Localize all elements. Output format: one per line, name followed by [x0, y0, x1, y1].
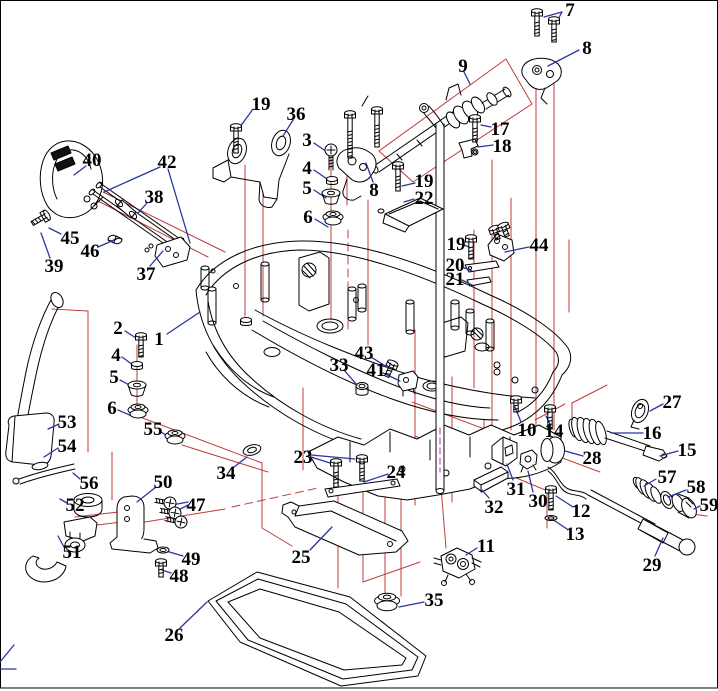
stud-icon [358, 284, 366, 312]
callout-52: 52 [66, 495, 85, 516]
callout-57: 57 [658, 467, 678, 488]
callout-59: 59 [700, 495, 718, 516]
nut-icon [327, 177, 338, 185]
bolt-icon [532, 9, 543, 36]
callout-44: 44 [530, 235, 550, 256]
callout-24: 24 [387, 462, 407, 483]
callout-43: 43 [355, 343, 374, 364]
callout-31: 31 [507, 479, 526, 500]
callout-15: 15 [678, 440, 697, 461]
callout-42: 42 [158, 152, 177, 173]
ring-icon [545, 516, 557, 521]
callout-39: 39 [45, 256, 64, 277]
callout-38: 38 [145, 187, 164, 208]
ring-icon [157, 547, 169, 553]
callout-23: 23 [294, 447, 313, 468]
grommet-icon [323, 211, 343, 225]
callout-19: 19 [447, 234, 466, 255]
stud-icon [406, 300, 414, 334]
callout-37: 37 [137, 264, 157, 285]
callout-30: 30 [529, 491, 548, 512]
callout-29: 29 [643, 555, 662, 576]
bolt-icon [549, 17, 560, 42]
nut-icon [241, 318, 252, 326]
callout-51: 51 [63, 542, 82, 563]
callout-54: 54 [58, 436, 78, 457]
leader-line-18 [478, 145, 493, 147]
callout-5: 5 [302, 178, 312, 199]
callout-10: 10 [518, 420, 537, 441]
callout-55: 55 [144, 419, 163, 440]
callout-6: 6 [303, 207, 313, 228]
leader-line-28 [565, 451, 583, 456]
exploded-parts-diagram: 1234564567889101112131415161718191919202… [0, 0, 718, 691]
callout-53: 53 [58, 412, 77, 433]
callout-19: 19 [252, 94, 271, 115]
callout-21: 21 [446, 269, 465, 290]
callout-49: 49 [182, 549, 201, 570]
callout-26: 26 [165, 625, 184, 646]
leader-line-19 [402, 183, 415, 186]
callout-2: 2 [113, 318, 123, 339]
callout-5: 5 [109, 367, 119, 388]
callout-8: 8 [582, 38, 592, 59]
bolt-icon [470, 115, 481, 142]
leader-line-12 [556, 496, 573, 507]
leader-line-11 [466, 548, 477, 555]
stud-icon [261, 262, 269, 302]
screw-icon [325, 144, 337, 170]
callout-46: 46 [81, 241, 100, 262]
tray-apron-26 [208, 572, 426, 686]
callout-50: 50 [154, 472, 173, 493]
callout-22: 22 [415, 188, 434, 209]
leader-line-1 [167, 312, 200, 334]
leader-line-39 [41, 233, 50, 258]
callout-11: 11 [477, 536, 495, 557]
callout-3: 3 [302, 130, 312, 151]
bolt-icon [372, 107, 383, 147]
callout-28: 28 [583, 448, 602, 469]
leader-line-2 [125, 331, 136, 338]
bottom-cowling [196, 241, 571, 457]
callout-35: 35 [425, 590, 444, 611]
callout-36: 36 [287, 104, 306, 125]
bolt-icon [156, 559, 167, 577]
callout-18: 18 [493, 136, 512, 157]
callout-34: 34 [217, 463, 237, 484]
callout-16: 16 [643, 423, 662, 444]
callout-40: 40 [83, 150, 102, 171]
bolt-icon [30, 209, 52, 228]
callout-32: 32 [485, 497, 504, 518]
stud-icon [348, 287, 356, 321]
callout-9: 9 [458, 56, 468, 77]
clamp-bracket-36 [213, 128, 294, 208]
callout-8: 8 [369, 180, 379, 201]
grommet-icon [128, 404, 148, 418]
leader-line-45 [49, 228, 61, 234]
fuel-connector-11 [434, 548, 481, 586]
callout-56: 56 [80, 473, 99, 494]
leader-line-4 [314, 170, 327, 179]
callout-33: 33 [330, 355, 349, 376]
callout-4: 4 [302, 158, 312, 179]
callout-12: 12 [572, 501, 591, 522]
leader-line-35 [399, 602, 424, 607]
callout-1: 1 [154, 329, 164, 350]
callout-25: 25 [292, 547, 311, 568]
leader-line-17 [481, 125, 491, 127]
callout-6: 6 [107, 398, 117, 419]
leader-line-26 [180, 602, 207, 628]
leader-line-27 [650, 404, 663, 411]
stud-icon [486, 319, 494, 351]
diagram-page: 1234564567889101112131415161718191919202… [0, 0, 718, 691]
leader-line-8 [548, 50, 579, 66]
callout-47: 47 [187, 495, 207, 516]
callout-4: 4 [111, 345, 121, 366]
callout-7: 7 [565, 0, 575, 21]
callout-27: 27 [663, 392, 683, 413]
grommet-icon [375, 593, 400, 611]
tiller-handle-group [6, 290, 158, 582]
ring-icon [242, 443, 262, 457]
grommet-icon [165, 430, 185, 444]
leader-line-42 [168, 169, 190, 243]
leader-line-46 [98, 240, 114, 247]
callout-45: 45 [61, 228, 80, 249]
callout-13: 13 [566, 524, 585, 545]
